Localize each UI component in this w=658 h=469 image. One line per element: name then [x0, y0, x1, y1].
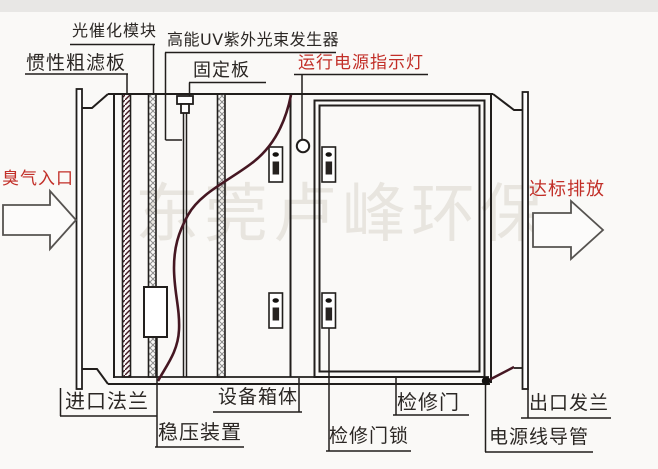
- label-outlet-flange: 出口发兰: [529, 394, 609, 414]
- outlet-arrow: [533, 201, 603, 259]
- inertial-filter-strip: [123, 94, 131, 377]
- label-odor-inlet: 臭气入口: [2, 171, 74, 189]
- photocatalyst-strip-2: [218, 94, 226, 377]
- door-lock-handle: [322, 147, 336, 182]
- door-lock-handle: [269, 147, 283, 182]
- door-lock-handle: [322, 293, 336, 328]
- label-inlet-flange: 进口法兰: [65, 391, 149, 412]
- label-fixing-plate: 固定板: [193, 62, 250, 81]
- label-power-indicator: 运行电源指示灯: [298, 55, 424, 73]
- flow-arrows: [3, 191, 603, 259]
- door-lock-handle: [269, 293, 283, 328]
- stabilizer-box: [144, 287, 167, 337]
- power-conduit-dot: [482, 377, 490, 385]
- door-locks: [269, 147, 336, 328]
- uv-purifier-structure-diagram: 东莞卢峰环保: [0, 0, 658, 469]
- inlet-arrow: [3, 191, 76, 249]
- outlet-flange-shape: [523, 92, 529, 389]
- power-indicator-light: [297, 140, 309, 152]
- label-access-door-lock: 检修门锁: [329, 427, 409, 447]
- label-uv-generator: 高能UV紫外光束发生器: [167, 32, 339, 49]
- inlet-flange-shape: [77, 89, 83, 389]
- access-door-frame: [315, 101, 485, 378]
- label-inertial-filter: 惯性粗滤板: [26, 54, 126, 74]
- label-power-conduit: 电源线导管: [489, 428, 589, 448]
- label-stabilizer: 稳压装置: [158, 422, 242, 443]
- label-equipment-cabinet: 设备箱体: [218, 388, 298, 408]
- label-compliant-discharge: 达标排放: [529, 181, 605, 200]
- label-access-door: 检修门: [397, 392, 460, 413]
- label-photocatalyst-module: 光催化模块: [72, 23, 157, 40]
- power-cable-curve: [158, 95, 514, 381]
